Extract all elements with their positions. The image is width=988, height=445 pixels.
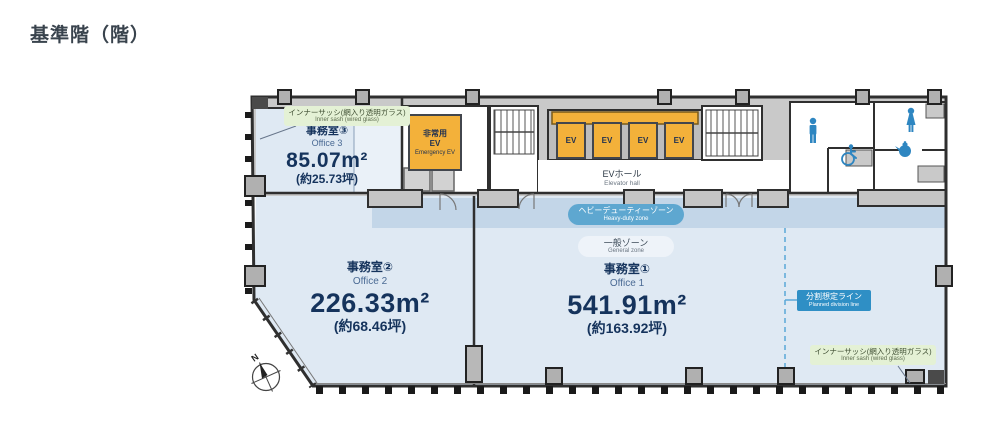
emergency-ev-label-en: Emergency EV — [415, 149, 455, 157]
floor-plan-linework: N — [0, 0, 988, 445]
elevator-3: EV — [628, 122, 658, 159]
elevator-hall-label: EVホール Elevator hall — [560, 169, 684, 188]
heavy-duty-zone-badge: ヘビーデューティーゾーン Heavy-duty zone — [568, 204, 684, 225]
inner-sash-label-bottom: インナーサッシ(網入り透明ガラス) Inner sash (wired glas… — [810, 345, 936, 365]
compass-n-label: N — [249, 352, 260, 364]
office1-label: 事務室① Office 1 541.91m² (約163.92坪) — [544, 262, 710, 337]
elevator-2: EV — [592, 122, 622, 159]
emergency-ev-label-jp: 非常用 — [423, 129, 447, 139]
floor-plan-page: 基準階（階） — [0, 0, 988, 445]
general-zone-badge: 一般ゾーン General zone — [578, 236, 674, 257]
emergency-elevator: 非常用 EV Emergency EV — [408, 114, 462, 171]
division-line-badge: 分割想定ライン Planned division line — [797, 290, 871, 311]
office2-label: 事務室② Office 2 226.33m² (約68.46坪) — [287, 260, 453, 335]
office3-label: 事務室③ Office 3 85.07m² (約25.73坪) — [252, 125, 402, 187]
elevator-1: EV — [556, 122, 586, 159]
emergency-ev-label-jp2: EV — [430, 139, 441, 149]
compass-icon: N — [249, 352, 280, 392]
elevator-4: EV — [664, 122, 694, 159]
inner-sash-label-top: インナーサッシ(網入り透明ガラス) Inner sash (wired glas… — [284, 106, 410, 126]
